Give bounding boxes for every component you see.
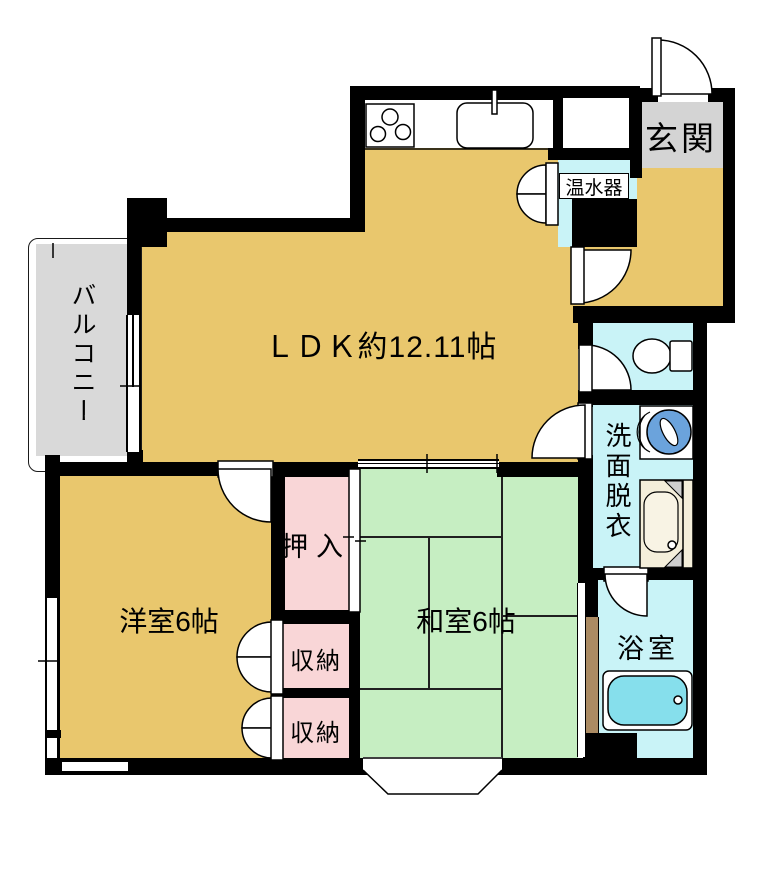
room-label-storage-lower: 収納 (278, 713, 354, 748)
wall-segment (127, 198, 167, 247)
wall-segment (572, 199, 637, 247)
floor-plan: 温水器 (0, 0, 763, 885)
stove-burner (382, 109, 398, 125)
room-label-storage-upper: 収納 (278, 641, 354, 676)
wall-segment (583, 733, 637, 760)
wall-segment (278, 688, 360, 698)
wall-segment (45, 730, 61, 738)
balcony-window (126, 315, 141, 452)
room-label-japanese: 和室6帖 (366, 600, 566, 640)
wall-segment (583, 568, 605, 580)
stove-burner (396, 125, 411, 140)
room-toilet (583, 318, 707, 395)
tatami-line (360, 536, 503, 538)
room-label-balcony: バルコニー (64, 282, 100, 427)
sliding-door-rail (358, 463, 499, 464)
wall-segment (573, 306, 735, 323)
room-label-western: 洋室6帖 (69, 600, 269, 640)
stove-burner (371, 127, 386, 142)
wall-segment (278, 610, 360, 624)
water-heater-label: 温水器 (565, 173, 622, 200)
room-label-entrance: 玄関 (631, 112, 731, 160)
wood-board-strip (585, 617, 599, 733)
wall-segment (578, 462, 593, 583)
room-label-bathroom: 浴室 (598, 627, 698, 666)
gas-stove (366, 104, 414, 147)
balcony-window-rail (132, 315, 134, 387)
wall-segment (127, 247, 141, 317)
western-room-window (45, 598, 59, 730)
room-ldk-kitchen-floor (365, 148, 560, 232)
wall-segment (553, 96, 561, 150)
room-label-washroom: 洗面脱衣 (599, 422, 636, 542)
western-room-window (45, 738, 59, 758)
kitchen-side-cabinet (561, 96, 631, 150)
room-label-ldk: ＬＤＫ約12.11帖 (231, 322, 531, 366)
tatami-line (360, 688, 503, 690)
japanese-room-sliding-door (358, 459, 499, 469)
wall-segment (58, 462, 220, 476)
wall-segment (165, 218, 365, 232)
entrance-door-arc (658, 40, 712, 94)
wall-segment (647, 568, 693, 580)
kitchen-sink (457, 103, 533, 148)
wall-segment (583, 390, 693, 405)
wall-segment (578, 323, 593, 349)
room-label-oshiire: 押入 (276, 525, 356, 564)
western-room-bottom-window (62, 760, 128, 773)
wall-segment (350, 86, 365, 232)
wall-segment (693, 318, 707, 775)
wall-segment (45, 758, 707, 775)
water-heater-label-box: 温水器 (559, 173, 629, 199)
